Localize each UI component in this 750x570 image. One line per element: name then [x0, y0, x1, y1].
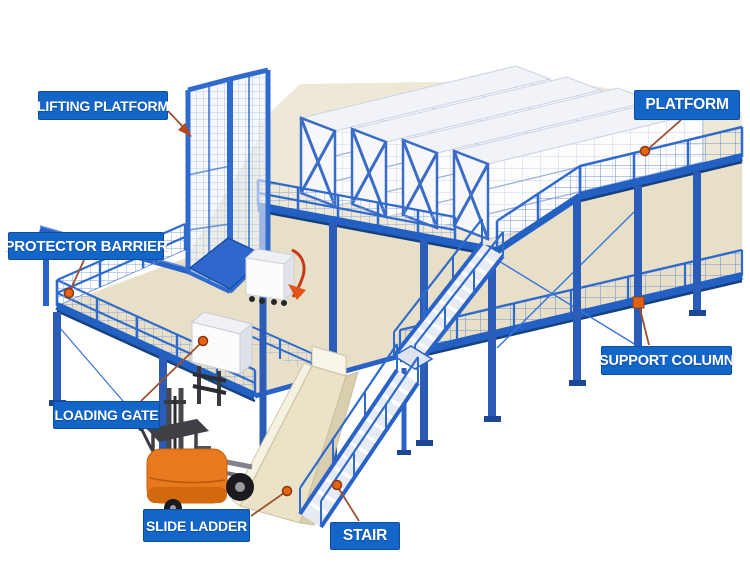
label-protector-barrier: PROTECTOR BARRIER [8, 232, 164, 260]
label-platform: PLATFORM [634, 90, 740, 120]
marker-dot [283, 487, 292, 496]
marker-dot [199, 337, 208, 346]
leader-line [339, 489, 359, 521]
mezzanine-illustration [0, 0, 750, 570]
marker-dot [333, 481, 342, 490]
marker-dot [65, 289, 74, 298]
label-stair: STAIR [330, 522, 400, 550]
label-support-column: SUPPORT COLUMN [601, 346, 732, 375]
marker-dot [641, 147, 650, 156]
mezzanine-diagram: LIFTING PLATFORM PLATFORM PROTECTOR BARR… [0, 0, 750, 570]
label-slide-ladder: SLIDE LADDER [143, 509, 250, 542]
marker-square [633, 297, 644, 308]
label-lifting-platform: LIFTING PLATFORM [38, 91, 168, 120]
label-loading-gate: LOADING GATE [53, 401, 160, 429]
